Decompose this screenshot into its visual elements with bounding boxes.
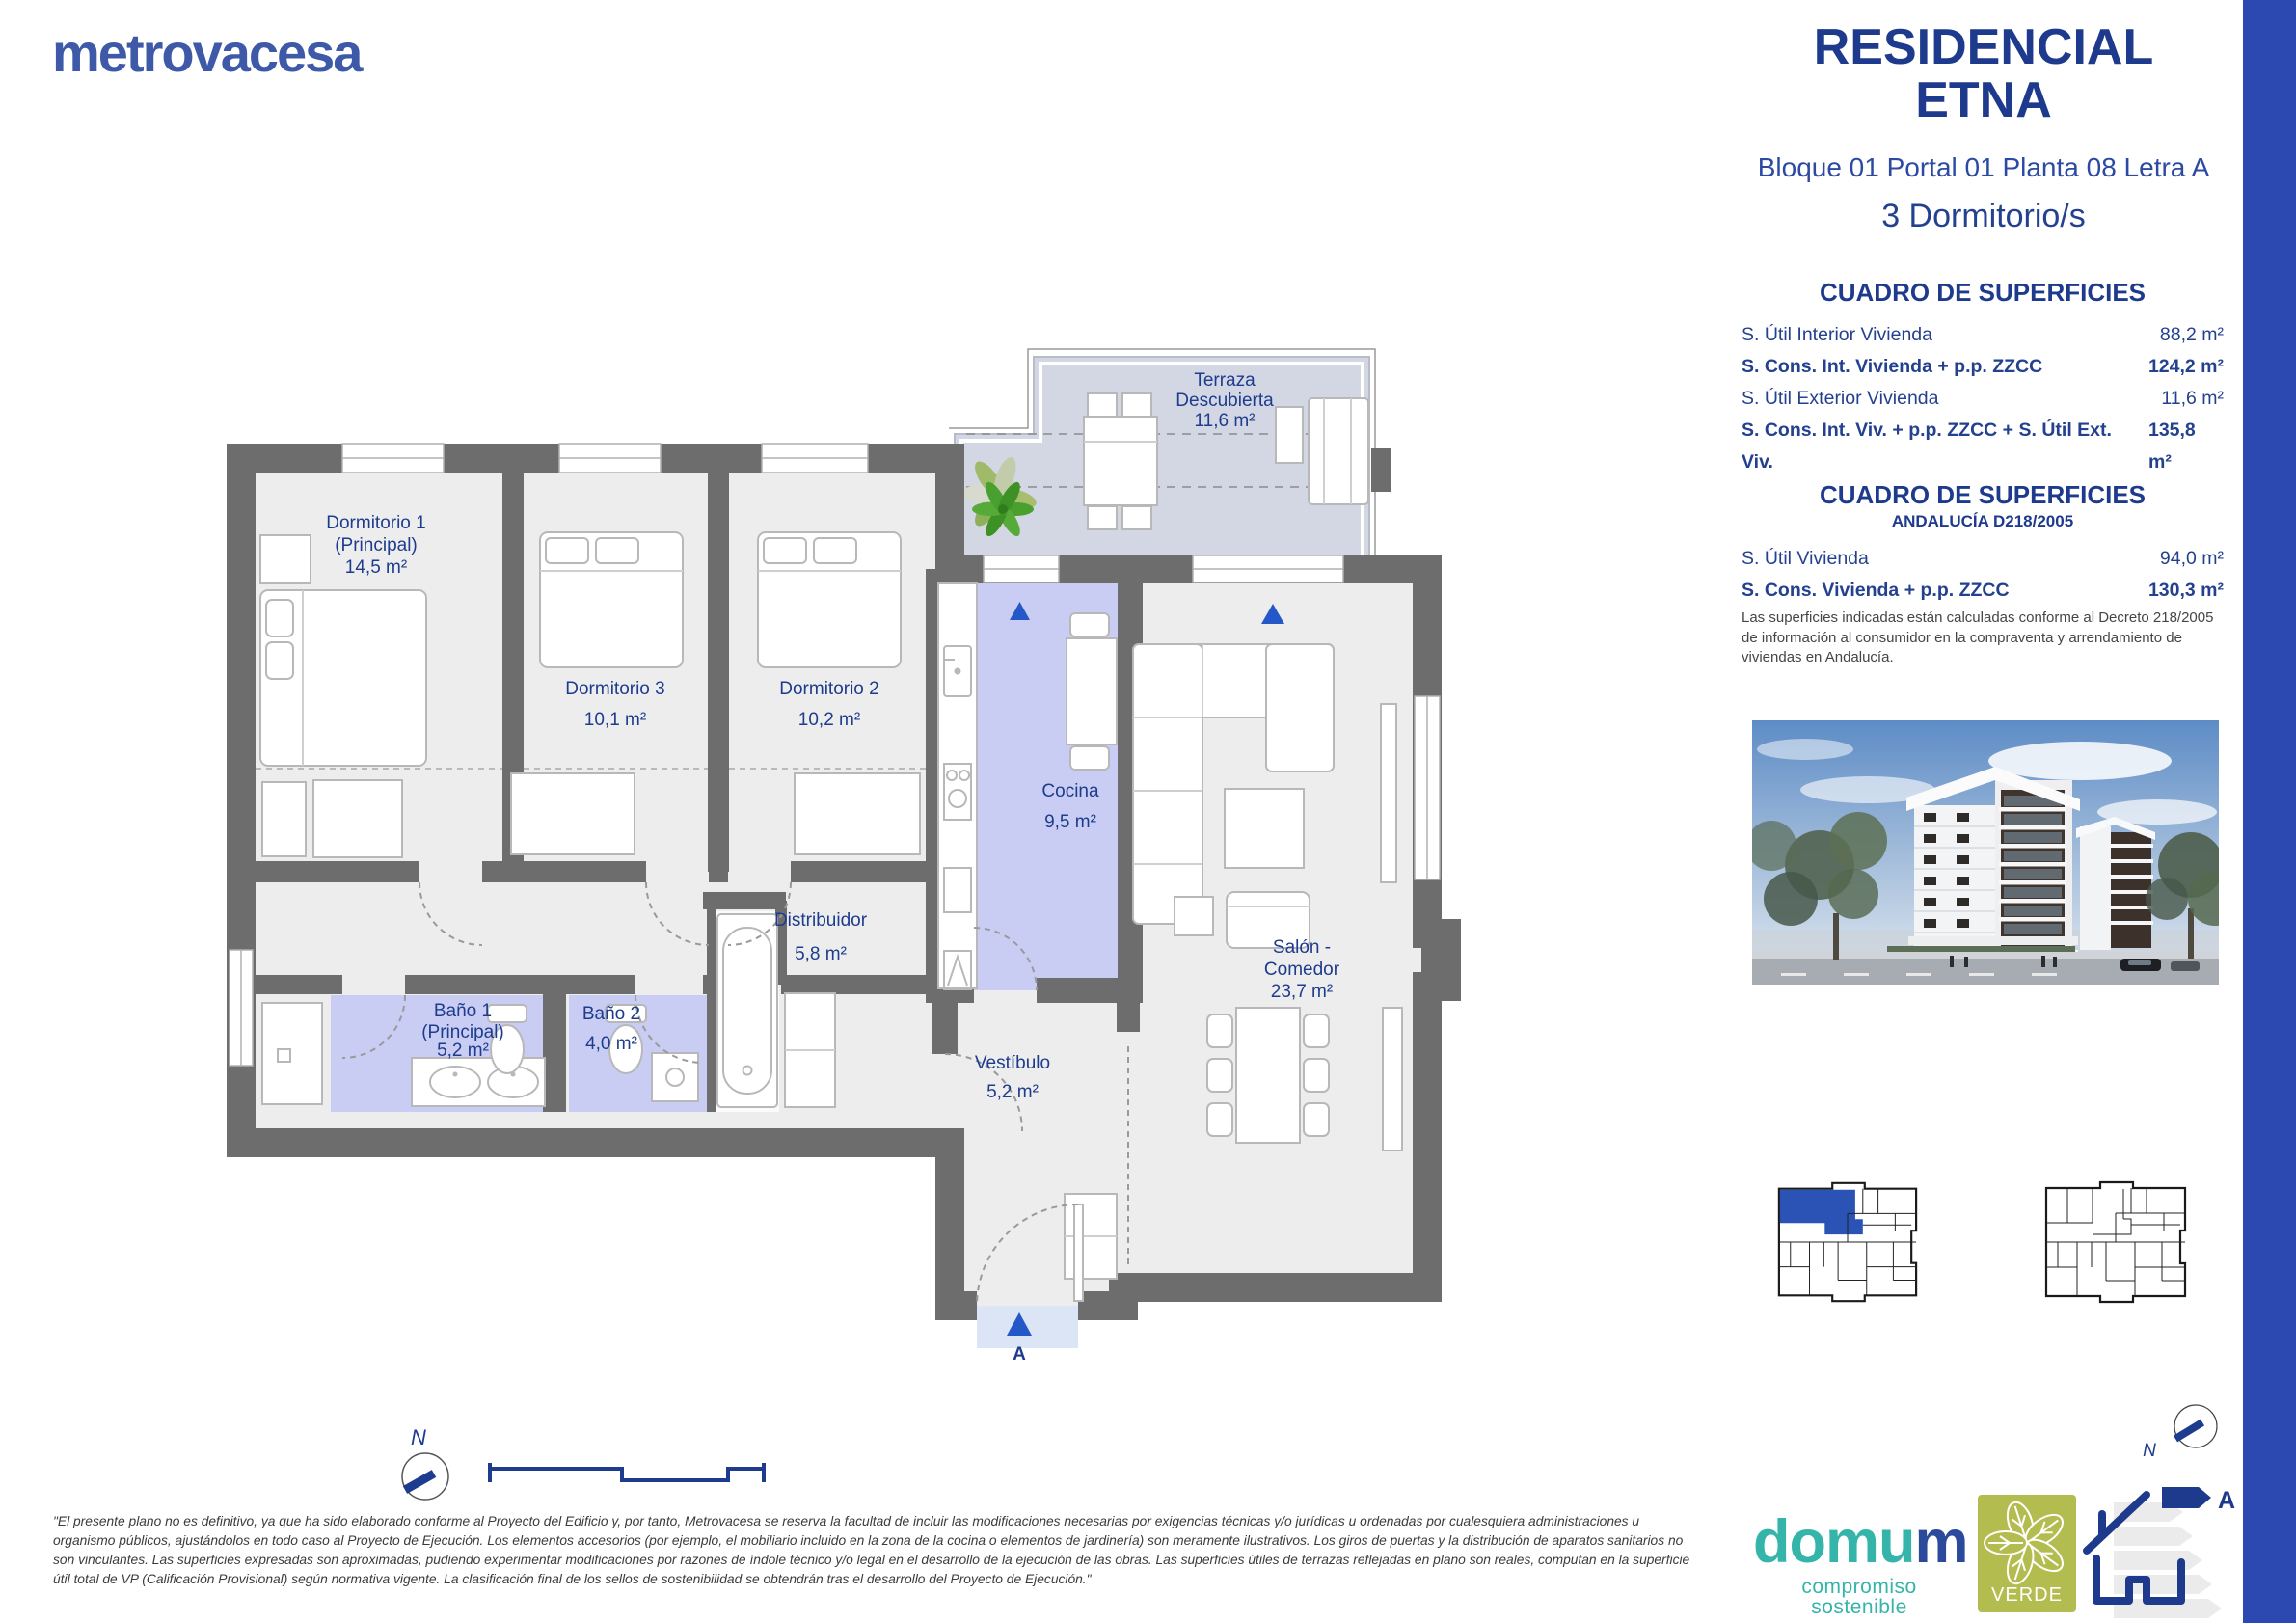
surfaces-title: CUADRO DE SUPERFICIES bbox=[1742, 278, 2224, 308]
terrace-pillar bbox=[1371, 448, 1391, 492]
svg-text:Vestíbulo: Vestíbulo bbox=[975, 1053, 1050, 1073]
entrance-letter: A bbox=[1013, 1344, 1026, 1365]
svg-text:Dormitorio 2: Dormitorio 2 bbox=[779, 679, 878, 699]
legal-disclaimer: "El presente plano no es definitivo, ya … bbox=[53, 1512, 1736, 1589]
verde-label: VERDE bbox=[1978, 1584, 2076, 1607]
terrace: Terraza Descubierta 11,6 m² bbox=[949, 349, 1391, 569]
svg-text:9,5 m²: 9,5 m² bbox=[1044, 812, 1096, 832]
svg-text:Salón -: Salón - bbox=[1273, 937, 1331, 958]
key-plan-highlighted bbox=[1771, 1175, 1924, 1310]
svg-text:Distribuidor: Distribuidor bbox=[774, 910, 868, 931]
svg-text:11,6 m²: 11,6 m² bbox=[1194, 411, 1255, 431]
unit-location: Bloque 01 Portal 01 Planta 08 Letra A bbox=[1733, 152, 2234, 183]
title-line2: ETNA bbox=[1733, 74, 2234, 127]
table-row: S. Útil Vivienda94,0 m² bbox=[1742, 543, 2224, 575]
surfaces-andalucia-title: CUADRO DE SUPERFICIES bbox=[1742, 480, 2224, 510]
svg-text:4,0 m²: 4,0 m² bbox=[585, 1034, 637, 1054]
table-row: S. Útil Interior Vivienda88,2 m² bbox=[1742, 319, 2224, 351]
svg-text:14,5 m²: 14,5 m² bbox=[345, 557, 407, 578]
bedroom-count: 3 Dormitorio/s bbox=[1733, 198, 2234, 235]
table-row: S. Útil Exterior Vivienda11,6 m² bbox=[1742, 383, 2224, 415]
table-row: S. Cons. Int. Vivienda + p.p. ZZCC124,2 … bbox=[1742, 351, 2224, 383]
svg-text:10,1 m²: 10,1 m² bbox=[584, 710, 646, 730]
verde-leaf-icon bbox=[1978, 1495, 2076, 1591]
svg-text:(Principal): (Principal) bbox=[421, 1022, 504, 1042]
table-row: S. Cons. Vivienda + p.p. ZZCC130,3 m² bbox=[1742, 575, 2224, 607]
north-label: N bbox=[2143, 1441, 2156, 1461]
key-plan-plain bbox=[2038, 1175, 2194, 1310]
svg-text:Cocina: Cocina bbox=[1041, 781, 1099, 801]
surfaces-note: Las superficies indicadas están calculad… bbox=[1742, 609, 2224, 668]
metrovacesa-logo: metrovacesa bbox=[52, 21, 361, 84]
page-accent-bar bbox=[2243, 0, 2296, 1623]
svg-text:5,2 m²: 5,2 m² bbox=[986, 1082, 1039, 1102]
building-render-image bbox=[1752, 720, 2219, 985]
north-label: N bbox=[411, 1425, 426, 1449]
svg-text:Dormitorio 3: Dormitorio 3 bbox=[565, 679, 664, 699]
svg-text:23,7 m²: 23,7 m² bbox=[1271, 982, 1333, 1002]
surfaces-table-andalucia: CUADRO DE SUPERFICIES ANDALUCÍA D218/200… bbox=[1742, 480, 2224, 668]
svg-text:Baño 1: Baño 1 bbox=[434, 1001, 492, 1021]
svg-text:5,8 m²: 5,8 m² bbox=[795, 944, 847, 964]
room-label-terraza: Terraza bbox=[1194, 370, 1256, 391]
svg-text:Baño 2: Baño 2 bbox=[582, 1004, 640, 1024]
svg-text:Descubierta: Descubierta bbox=[1175, 391, 1274, 411]
svg-text:Comedor: Comedor bbox=[1264, 960, 1340, 980]
domum-tagline: compromiso sostenible bbox=[1753, 1577, 1965, 1617]
sidewalk bbox=[1752, 952, 2219, 959]
north-compass: N bbox=[384, 1414, 480, 1510]
floor-plan: Terraza Descubierta 11,6 m² bbox=[222, 328, 1475, 1365]
north-compass-small: N bbox=[2131, 1396, 2237, 1464]
domum-logo: domum compromiso sostenible bbox=[1753, 1512, 1965, 1617]
page-title: RESIDENCIAL ETNA bbox=[1733, 21, 2234, 127]
second-tower bbox=[2076, 817, 2155, 950]
svg-text:Dormitorio 1: Dormitorio 1 bbox=[326, 513, 425, 533]
energy-rating: A bbox=[2218, 1487, 2235, 1514]
table-row: S. Cons. Int. Viv. + p.p. ZZCC + S. Útil… bbox=[1742, 415, 2224, 478]
svg-text:5,2 m²: 5,2 m² bbox=[437, 1041, 489, 1061]
surfaces-andalucia-subtitle: ANDALUCÍA D218/2005 bbox=[1742, 512, 2224, 531]
surfaces-table: CUADRO DE SUPERFICIES S. Útil Interior V… bbox=[1742, 278, 2224, 478]
title-line1: RESIDENCIAL bbox=[1733, 21, 2234, 74]
svg-text:10,2 m²: 10,2 m² bbox=[798, 710, 860, 730]
floorplan-sheet: metrovacesa RESIDENCIAL ETNA Bloque 01 P… bbox=[0, 0, 2296, 1623]
verde-badge: VERDE bbox=[1978, 1495, 2076, 1612]
energy-arrow bbox=[2162, 1487, 2211, 1508]
svg-text:(Principal): (Principal) bbox=[335, 535, 418, 555]
scale-bar bbox=[482, 1461, 781, 1490]
energy-certificate-icon: A bbox=[2073, 1474, 2252, 1618]
